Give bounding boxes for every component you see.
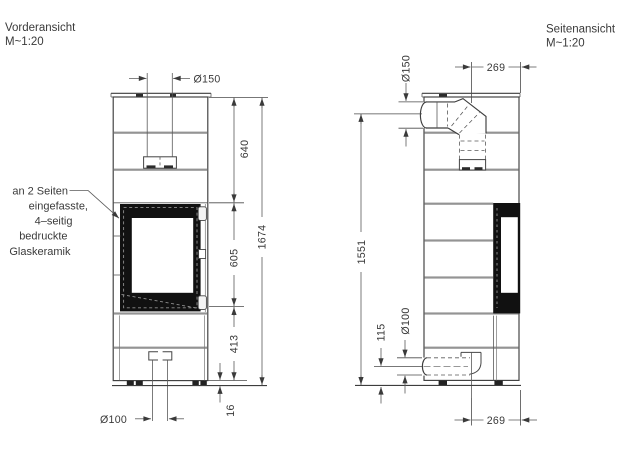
side-view-scale: M~1:20 (546, 38, 585, 50)
side-air-pipe (422, 352, 481, 398)
annotation-line-4: bedruckte (19, 231, 67, 243)
drawing-page: Vorderansicht M~1:20 (0, 0, 624, 460)
side-view-title: Seitenansicht (546, 24, 616, 36)
front-view-title: Vorderansicht (5, 22, 76, 34)
dim-front-total-height: 1674 (257, 225, 269, 250)
annotation-line-2: eingefasste, (29, 201, 88, 213)
annotation-line-5: Glaskeramik (9, 246, 71, 258)
annotation-leader-arrow (88, 190, 119, 218)
front-view-header: Vorderansicht M~1:20 (5, 22, 76, 48)
dim-side-air-diameter: Ø100 (400, 307, 412, 334)
front-firebox-glass (113, 204, 207, 312)
dim-front-air-diameter: Ø100 (100, 414, 127, 426)
dim-side-flue-offset: 269 (487, 62, 506, 74)
dim-side-air-axis-height: 115 (376, 324, 388, 342)
front-flue-stub (144, 157, 177, 168)
dim-front-glass-height: 605 (229, 249, 241, 268)
annotation-line-1: an 2 Seiten (12, 186, 68, 198)
front-view-scale: M~1:20 (5, 36, 44, 48)
dim-front-upper-height: 640 (239, 140, 251, 159)
dim-front-flue-diameter: Ø150 (194, 74, 221, 86)
glass-window-front (132, 218, 193, 293)
technical-drawing: Vorderansicht M~1:20 (0, 0, 624, 460)
dim-front-floor-gap: 16 (225, 404, 237, 416)
front-air-stub (149, 352, 172, 421)
front-annotation: an 2 Seiten eingefasste, 4–seitig bedruc… (9, 186, 119, 258)
side-view: Seitenansicht M~1:20 (354, 24, 616, 428)
glass-window-side (501, 217, 518, 293)
side-stove-body (355, 93, 521, 398)
dim-side-air-offset: 269 (487, 415, 506, 427)
dim-front-base-height: 413 (229, 335, 241, 354)
dim-side-flue-diameter: Ø150 (400, 55, 412, 82)
side-glass-edge (493, 203, 520, 313)
annotation-line-3: 4–seitig (35, 216, 73, 228)
side-view-header: Seitenansicht M~1:20 (546, 24, 616, 50)
door-latch (199, 250, 206, 259)
dim-side-axis-height: 1551 (356, 240, 368, 265)
door-hinge-top (198, 207, 206, 221)
front-stove-body (111, 73, 267, 421)
side-flue-pipe (420, 99, 486, 170)
door-hinge-bottom (198, 296, 206, 310)
front-view: Vorderansicht M~1:20 (5, 22, 269, 426)
